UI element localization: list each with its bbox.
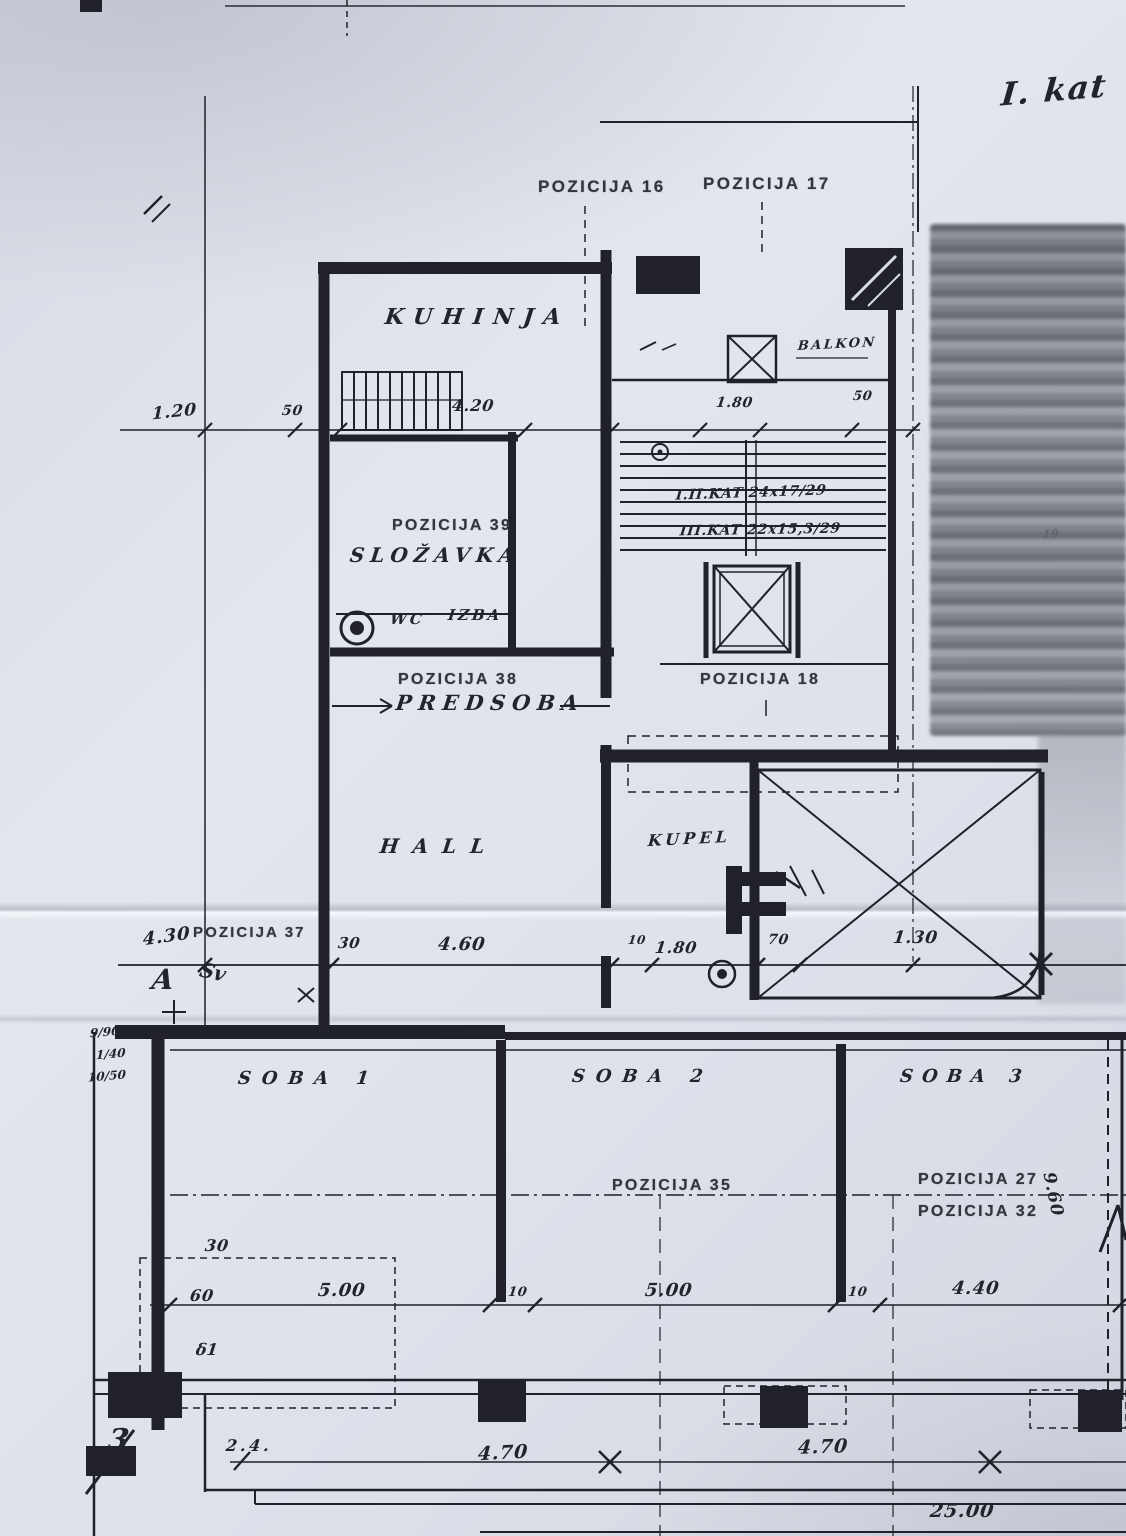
dim-low-500b: 5.00 [644, 1282, 694, 1300]
linework-svg [0, 0, 1126, 1536]
dim-stair-width: 1.80 [715, 396, 754, 410]
dim-mid-30: 30 [337, 936, 361, 951]
dim-low-30: 30 [204, 1238, 230, 1254]
dim-low-500a: 5.00 [317, 1282, 367, 1300]
dim-low-60: 60 [189, 1288, 215, 1304]
room-label-izba: IZBA [447, 608, 503, 623]
dim-bottom-2500: 25.00 [929, 1502, 996, 1521]
room-label-balcony: BALKON [797, 336, 877, 353]
dim-bottom-470a: 4.70 [477, 1443, 529, 1465]
dim-mid-130: 1.30 [892, 930, 939, 947]
dim-mid-70: 70 [767, 933, 790, 947]
annotation-beam-c: 10/50 [88, 1068, 126, 1083]
room-label-wc: WC [389, 612, 426, 627]
room-label-hall: HALL [379, 836, 500, 856]
annotation-beam-a: 9/90 [90, 1025, 120, 1040]
wc-fixture [341, 612, 373, 644]
kitchen-window-grid [342, 372, 462, 430]
dimension-line-lower [150, 1298, 1126, 1312]
dim-low-10b: 10 [847, 1286, 868, 1299]
dim-low-10a: 10 [507, 1286, 528, 1299]
dim-kitchen-width: 4.20 [451, 398, 495, 414]
label-pozicija-16: POZICIJA 16 [538, 178, 666, 195]
dimension-line-middle [118, 953, 1126, 975]
stair-note-line2: III.KAT 22x15,3/29 [679, 522, 841, 539]
label-pozicija-17: POZICIJA 17 [703, 175, 831, 192]
dashed-landing-outline [628, 736, 898, 792]
annotation-faint-19: 19 [1041, 528, 1059, 540]
room-label-soba1: SOBA 1 [237, 1070, 381, 1088]
label-pozicija-32: POZICIJA 32 [918, 1204, 1038, 1220]
dim-mid-10: 10 [627, 934, 646, 946]
grid-lines [205, 86, 918, 1032]
room-label-soba3: SOBA 3 [899, 1068, 1032, 1086]
annotation-page-number: 3 [106, 1426, 131, 1456]
room-label-entry: PREDSOBA [395, 692, 586, 713]
room-label-kitchen: KUHINJA [384, 306, 572, 328]
room-label-bath: KUPEL [647, 829, 731, 849]
label-pozicija-38: POZICIJA 38 [398, 672, 518, 688]
dim-bottom-470b: 4.70 [797, 1437, 849, 1458]
floor-note: I. kat [1000, 70, 1109, 111]
label-pozicija-18: POZICIJA 18 [700, 672, 820, 688]
room-label-soba2: SOBA 2 [571, 1068, 715, 1086]
dimension-line-bottom [230, 1451, 1126, 1473]
annotation-delta1: δ1 [195, 1342, 219, 1358]
dim-top-50b: 50 [852, 390, 873, 403]
dim-mid-460: 4.60 [437, 936, 487, 954]
label-pozicija-39: POZICIJA 39 [392, 518, 512, 534]
dim-low-440: 4.40 [951, 1280, 1001, 1298]
annotation-scribble: 2.4. [225, 1438, 273, 1454]
room-label-pantry: SLOŽAVKA [349, 545, 522, 565]
dim-top-50a: 50 [281, 404, 304, 418]
upper-walls [318, 250, 1048, 1026]
annotation-letter-a: A [150, 966, 175, 994]
label-pozicija-37: POZICIJA 37 [193, 925, 306, 940]
elevator-shaft [660, 562, 892, 664]
flue-and-chimney [636, 248, 903, 382]
label-pozicija-35: POZICIJA 35 [612, 1178, 732, 1194]
label-pozicija-27: POZICIJA 27 [918, 1172, 1038, 1188]
dimension-line-top [120, 423, 920, 437]
annotation-beam-b: 1/40 [96, 1047, 126, 1062]
dim-top-left: 1.20 [152, 402, 197, 424]
dim-mid-180: 1.80 [654, 940, 698, 956]
blueprint-sheet: POZICIJA 16 POZICIJA 17 POZICIJA 18 POZI… [0, 0, 1126, 1536]
